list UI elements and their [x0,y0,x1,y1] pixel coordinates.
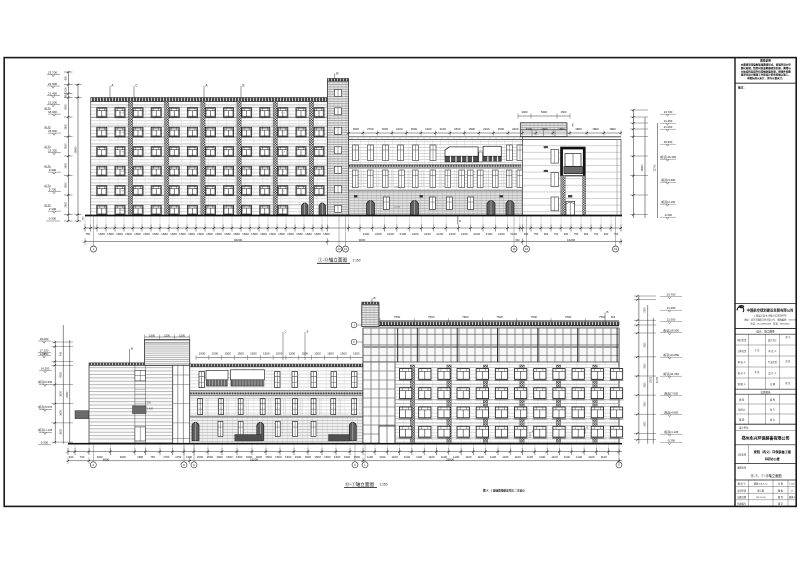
svg-text:3000: 3000 [522,110,528,114]
svg-text:21750: 21750 [654,164,657,172]
svg-text:(标高)7.650: (标高)7.650 [664,392,679,396]
svg-text:900: 900 [544,232,549,236]
svg-text:600: 600 [65,76,68,81]
svg-text:1100: 1100 [514,455,521,459]
svg-text:13: 13 [344,247,348,251]
svg-text:2100: 2100 [461,232,468,236]
svg-text:(标高)5.670: (标高)5.670 [38,405,53,409]
svg-text:荥阳（巩义）环保装备工程: 荥阳（巩义）环保装备工程 [754,449,792,454]
svg-text:1200: 1200 [425,127,432,131]
svg-text:1100: 1100 [404,455,411,459]
svg-text:(标高)1.125: (标高)1.125 [38,428,53,432]
svg-text:(标高)2.100: (标高)2.100 [661,200,676,204]
svg-text:1500: 1500 [353,352,360,356]
svg-text:3600: 3600 [645,363,647,369]
svg-text:22.500: 22.500 [48,82,58,86]
svg-text:2100: 2100 [400,232,407,236]
svg-text:1100: 1100 [539,455,546,459]
svg-text:D: D [183,463,185,467]
svg-text:6.300: 6.300 [119,190,125,192]
svg-text:1500: 1500 [164,333,170,337]
svg-text:1500: 1500 [324,455,331,459]
svg-text:1100: 1100 [379,455,386,459]
svg-text:1500: 1500 [250,352,257,356]
svg-text:1100: 1100 [478,455,485,459]
svg-text:1100: 1100 [551,455,558,459]
svg-text:1500: 1500 [275,455,282,459]
svg-text:2100: 2100 [498,232,505,236]
svg-text:1500: 1500 [260,232,267,236]
svg-text:16: 16 [525,247,529,251]
svg-text:7500: 7500 [496,315,503,319]
svg-text:1:150: 1:150 [380,483,388,487]
svg-text:1800: 1800 [609,127,616,131]
svg-text:K: K [193,463,195,467]
svg-text:2100: 2100 [412,232,419,236]
svg-text:1100: 1100 [416,455,423,459]
svg-text:1800: 1800 [575,127,582,131]
svg-text:B: B [336,72,338,76]
svg-text:1500: 1500 [237,352,244,356]
svg-text:1500: 1500 [98,232,105,236]
svg-text:1500: 1500 [143,232,150,236]
svg-text:1500: 1500 [134,232,141,236]
svg-text:郑州永兴环保装备有限公司: 郑州永兴环保装备有限公司 [742,435,790,441]
svg-text:1500: 1500 [224,232,231,236]
svg-text:设计、施工图章: 设计、施工图章 [756,330,775,334]
svg-text:21.000: 21.000 [667,318,676,322]
svg-text:16200: 16200 [567,238,575,242]
svg-text:3000: 3000 [120,455,126,459]
svg-text:1500: 1500 [197,455,204,459]
svg-text:15.300: 15.300 [48,129,57,133]
svg-text:1500: 1500 [107,232,114,236]
svg-text:1500: 1500 [344,455,351,459]
svg-text:1800: 1800 [469,127,476,131]
svg-text:600: 600 [611,315,616,319]
svg-text:1500: 1500 [170,232,177,236]
svg-text:设计单位: 设计单位 [739,425,749,429]
svg-text:2100: 2100 [375,232,382,236]
svg-text:1500: 1500 [263,352,270,356]
svg-text:1500: 1500 [353,127,360,131]
svg-text:1800: 1800 [592,127,599,131]
svg-text:2100: 2100 [510,232,517,236]
svg-text:18.900: 18.900 [48,110,57,114]
svg-text:(标高)1.125: (标高)1.125 [664,430,679,434]
svg-text:3600: 3600 [645,342,647,348]
svg-text:1500: 1500 [188,232,195,236]
svg-text:1500: 1500 [526,127,533,131]
svg-text:1300: 1300 [186,455,192,459]
svg-text:21.450: 21.450 [667,306,676,310]
svg-text:3600: 3600 [59,429,62,435]
svg-text:15000: 15000 [66,391,69,398]
svg-text:1500: 1500 [314,455,321,459]
svg-text:2700: 2700 [367,127,374,131]
svg-text:7500: 7500 [531,315,538,319]
svg-text:4.000: 4.000 [394,187,400,189]
svg-text:1:150: 1:150 [353,258,361,262]
svg-text:1500: 1500 [149,333,155,337]
svg-text:1100: 1100 [564,455,571,459]
svg-text:1950: 1950 [137,455,143,459]
svg-text:9000: 9000 [359,238,366,242]
svg-text:C: C [354,463,356,467]
svg-text:25600: 25600 [446,457,454,461]
svg-text:1750: 1750 [163,455,169,459]
svg-text:1500: 1500 [285,455,292,459]
svg-text:3600: 3600 [645,421,647,427]
svg-text:12.300: 12.300 [48,148,57,152]
svg-text:7500: 7500 [428,315,435,319]
svg-text:2100: 2100 [424,232,431,236]
svg-text:450: 450 [59,351,62,356]
svg-text:1500: 1500 [269,232,276,236]
svg-text:1500: 1500 [334,455,341,459]
svg-text:750: 750 [85,232,90,236]
svg-text:9.600: 9.600 [119,171,125,173]
svg-text:15000: 15000 [651,376,653,383]
svg-text:T: T [618,463,620,467]
svg-text:21.450: 21.450 [48,91,58,95]
svg-text:(标高)15.300: (标高)15.300 [660,155,676,159]
svg-text:19: 19 [614,247,618,251]
svg-text:23.700: 23.700 [48,70,58,74]
svg-text:-0.050: -0.050 [394,207,401,209]
svg-text:12.900: 12.900 [119,151,126,153]
svg-text:1500: 1500 [116,232,123,236]
svg-text:1500: 1500 [561,110,567,114]
svg-text:B: B [373,296,375,300]
svg-text:1100: 1100 [527,455,534,459]
svg-text:3600: 3600 [645,382,647,388]
svg-text:1100: 1100 [588,455,595,459]
svg-text:K: K [353,340,355,344]
svg-text:2400: 2400 [512,127,519,131]
svg-text:1500: 1500 [161,232,168,236]
svg-text:1500: 1500 [215,232,222,236]
svg-text:-0.300: -0.300 [40,440,49,444]
svg-text:B: B [606,310,608,314]
svg-text:23.700: 23.700 [664,110,673,114]
svg-text:1500: 1500 [289,352,296,356]
svg-text:300: 300 [69,455,74,459]
svg-text:幕墙说明: 幕墙说明 [759,59,771,63]
svg-text:1500: 1500 [295,455,302,459]
svg-text:图 A：1 玻璃幕墙做法祥见 二次设计: 图 A：1 玻璃幕墙做法祥见 二次设计 [483,489,525,493]
svg-text:1500: 1500 [340,352,347,356]
svg-text:2100: 2100 [440,127,447,131]
svg-text:18.900: 18.900 [664,140,673,144]
svg-text:2100: 2100 [436,232,443,236]
svg-text:2100: 2100 [396,127,403,131]
svg-text:1500: 1500 [152,232,159,236]
svg-text:B: B [131,347,133,351]
svg-text:1500: 1500 [125,232,132,236]
svg-text:1500: 1500 [179,232,186,236]
svg-text:21.450: 21.450 [664,119,673,123]
svg-text:2100: 2100 [449,232,456,236]
svg-text:1900: 1900 [382,127,389,131]
svg-text:⑬-①、①-⑬轴立面图: ⑬-①、①-⑬轴立面图 [751,473,782,478]
svg-text:1.400: 1.400 [147,409,153,411]
svg-text:A: A [92,463,94,467]
svg-text:中国航空规划建设发展有限公司: 中国航空规划建设发展有限公司 [747,307,794,312]
svg-text:4500: 4500 [59,372,62,378]
svg-text:21750: 21750 [657,376,659,383]
svg-text:1500: 1500 [179,333,185,337]
svg-text:1500: 1500 [233,232,240,236]
svg-text:46200: 46200 [234,238,243,242]
svg-text:1500: 1500 [236,455,243,459]
svg-text:1500: 1500 [216,455,223,459]
svg-text:(标高)4.050: (标高)4.050 [664,411,679,415]
svg-text:5000: 5000 [541,110,547,114]
svg-text:21.000: 21.000 [664,125,673,129]
svg-text:3600: 3600 [65,162,68,168]
svg-text:2250: 2250 [645,307,647,313]
svg-text:750: 750 [534,232,539,236]
svg-text:18.000: 18.000 [40,337,49,341]
svg-text:1500: 1500 [305,455,312,459]
svg-text:1500: 1500 [323,232,330,236]
svg-text:3600: 3600 [65,123,68,129]
svg-text:1500: 1500 [276,352,283,356]
svg-text:1500: 1500 [278,232,285,236]
svg-text:1500: 1500 [265,455,272,459]
svg-text:700: 700 [80,455,85,459]
svg-text:3600: 3600 [645,401,647,407]
svg-text:1100: 1100 [502,455,509,459]
svg-text:7500: 7500 [565,315,572,319]
svg-text:1100: 1100 [367,455,374,459]
svg-text:1:150: 1:150 [789,484,795,486]
svg-text:900: 900 [564,232,569,236]
svg-text:B: B [459,219,461,223]
svg-text:1500: 1500 [498,127,505,131]
svg-text:(标高)14.850: (标高)14.850 [663,353,679,357]
svg-text:750: 750 [614,232,619,236]
svg-text:1500: 1500 [224,352,231,356]
svg-text:E: E [307,330,309,334]
svg-text:21.000: 21.000 [48,100,58,104]
svg-text:6600: 6600 [103,457,110,461]
svg-text:(标高)9.350: (标高)9.350 [38,380,53,384]
svg-text:3600: 3600 [59,391,62,397]
svg-text:(标高)11.250: (标高)11.250 [663,372,679,376]
svg-text:1100: 1100 [391,455,398,459]
svg-text:2.100: 2.100 [49,207,57,211]
svg-text:2100: 2100 [486,232,493,236]
svg-text:1100: 1100 [576,455,583,459]
svg-text:1100: 1100 [465,455,472,459]
svg-text:-0.300: -0.300 [664,213,672,217]
svg-text:科研办公楼: 科研办公楼 [765,456,780,461]
svg-text:B: B [242,84,244,88]
svg-text:1800: 1800 [541,127,548,131]
svg-text:1500: 1500 [454,127,461,131]
svg-text:C: C [284,330,286,334]
svg-text:15: 15 [512,247,516,251]
svg-text:A: A [532,430,534,434]
svg-text:1050: 1050 [65,87,68,93]
svg-text:7500: 7500 [462,315,469,319]
svg-text:会签图章: 会签图章 [760,390,771,394]
svg-text:14.850: 14.850 [40,352,49,356]
svg-text:①-⑬轴立面图: ①-⑬轴立面图 [318,257,347,264]
svg-text:2100: 2100 [483,127,490,131]
svg-text:1500: 1500 [199,352,206,356]
svg-text:1500: 1500 [314,352,321,356]
svg-text:1100: 1100 [428,455,435,459]
svg-text:(标高)9.300: (标高)9.300 [661,178,676,182]
svg-text:-0.300: -0.300 [48,217,57,221]
svg-text:3600: 3600 [65,104,68,110]
svg-text:2100: 2100 [387,232,394,236]
svg-text:750: 750 [554,232,559,236]
svg-text:1800: 1800 [558,127,565,131]
svg-text:19800: 19800 [73,146,77,154]
svg-text:本图标高以米计，余均以毫米计。: 本图标高以米计，余均以毫米计。 [746,76,785,80]
svg-text:900: 900 [524,232,529,236]
svg-text:⑬-①轴立面图: ⑬-①轴立面图 [345,481,374,488]
svg-text:1500: 1500 [305,232,312,236]
svg-text:19800: 19800 [641,164,644,172]
svg-text:2013.6.30: 2013.6.30 [756,497,767,499]
svg-text:1500: 1500 [212,352,219,356]
svg-text:5.700: 5.700 [49,187,57,191]
svg-text:750: 750 [150,455,155,459]
svg-text:1500: 1500 [327,352,334,356]
svg-text:3600: 3600 [65,182,68,188]
svg-text:7500: 7500 [394,315,401,319]
svg-text:3600: 3600 [65,201,68,207]
svg-text:1750: 1750 [175,455,181,459]
svg-text:1500: 1500 [206,232,213,236]
svg-text:450: 450 [65,93,68,98]
svg-text:3.000: 3.000 [119,210,125,212]
svg-text:1500: 1500 [226,455,233,459]
svg-text:-0.300: -0.300 [667,439,675,443]
svg-text:19.500: 19.500 [119,112,126,114]
svg-text:2.200: 2.200 [145,403,151,405]
svg-text:(标高)18.900: (标高)18.900 [663,329,679,333]
svg-text:900: 900 [515,239,520,242]
svg-text:1500: 1500 [197,232,204,236]
svg-text:1500: 1500 [296,232,303,236]
svg-text:14.250: 14.250 [41,367,50,371]
svg-text:3600: 3600 [59,410,62,416]
svg-text:2100: 2100 [363,232,370,236]
svg-text:3600: 3600 [65,143,68,149]
svg-text:750: 750 [574,232,579,236]
svg-text:9.300: 9.300 [49,168,57,172]
svg-text:1500: 1500 [314,232,321,236]
svg-text:1100: 1100 [601,455,608,459]
svg-text:备注：: 备注： [737,85,746,89]
svg-text:1500: 1500 [251,232,258,236]
svg-text:12: 12 [337,247,341,251]
svg-text:1500: 1500 [411,127,418,131]
svg-text:900: 900 [584,232,589,236]
svg-text:1500: 1500 [287,232,294,236]
svg-text:1500: 1500 [354,455,361,459]
svg-text:1100: 1100 [490,455,497,459]
svg-text:23.700: 23.700 [667,293,676,297]
svg-text:16.200: 16.200 [119,132,126,134]
svg-text:900: 900 [604,232,609,236]
svg-text:750: 750 [594,232,599,236]
svg-text:E: E [587,426,589,430]
svg-text:16200: 16200 [250,457,258,461]
svg-text:2100: 2100 [473,232,480,236]
svg-text:1500: 1500 [207,455,214,459]
svg-text:1500: 1500 [242,232,249,236]
